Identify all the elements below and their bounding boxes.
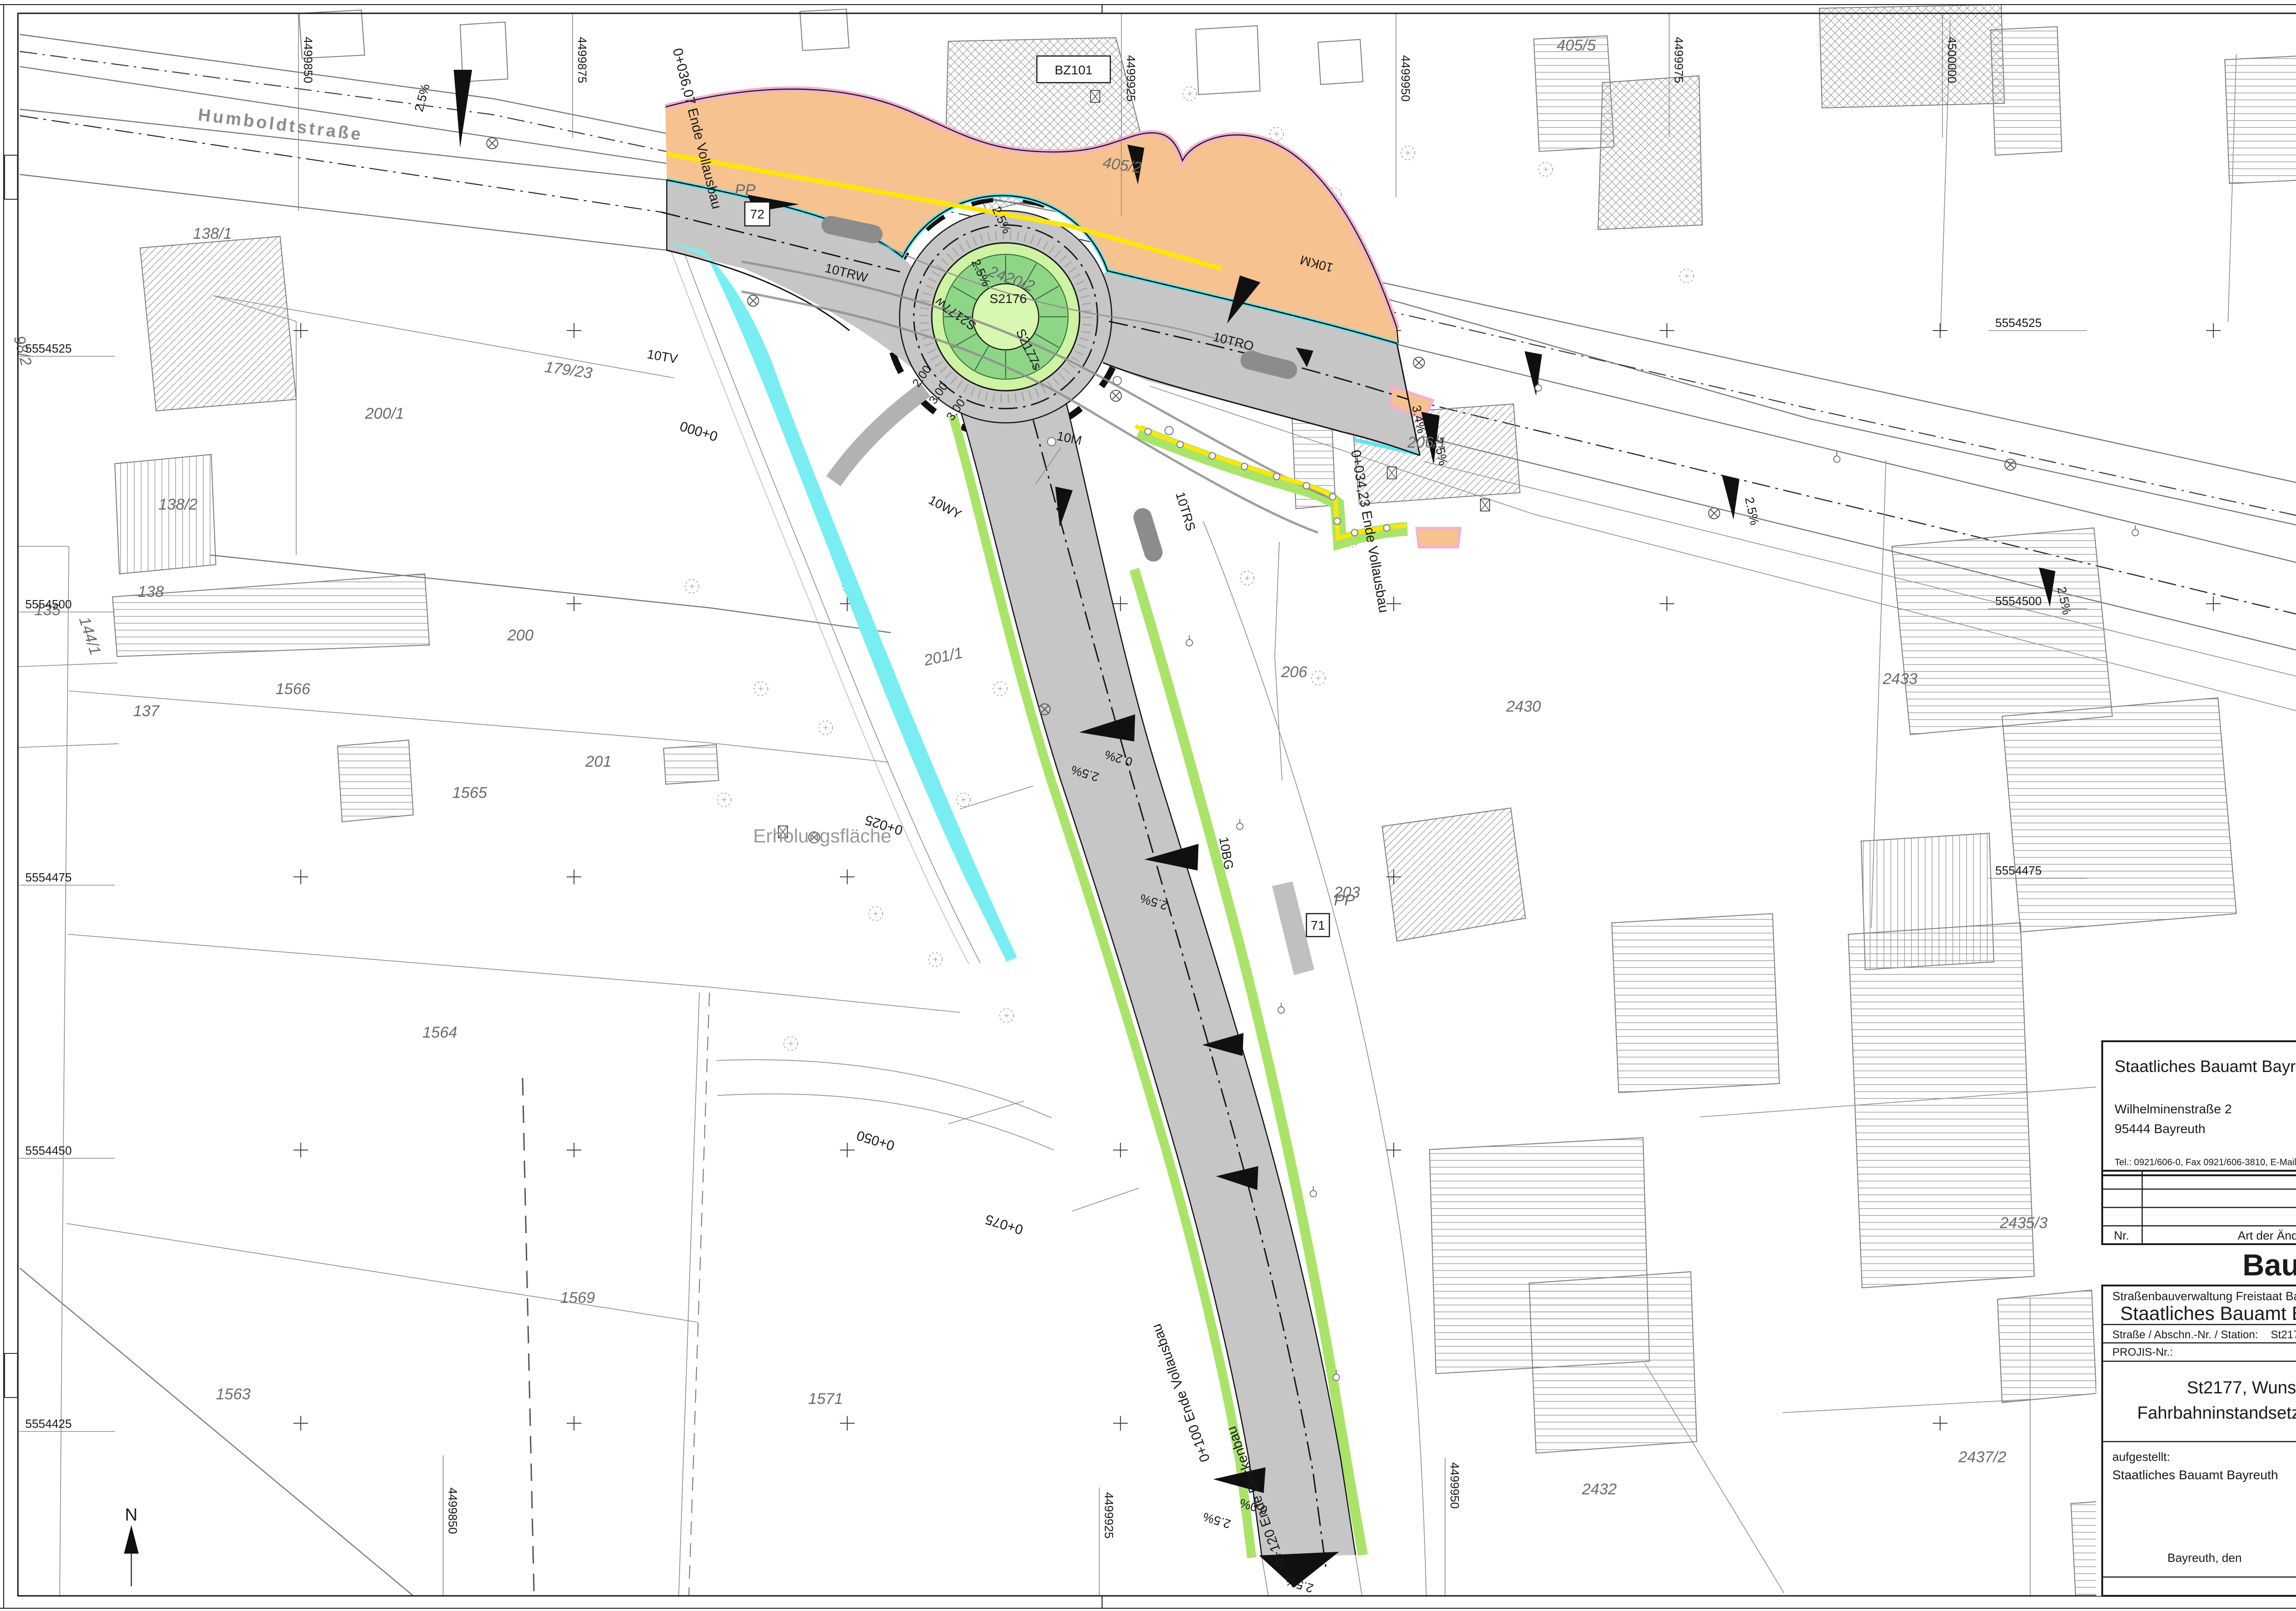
- parcel-label: 1565: [452, 784, 487, 802]
- grid-x-label: 4499850: [301, 37, 315, 83]
- bz-label: BZ101: [1055, 63, 1093, 77]
- grid-y-label: 5554450: [25, 1144, 72, 1157]
- aufgestellt-label: aufgestellt:: [2112, 1450, 2170, 1464]
- parcel-label: 138/2: [158, 496, 197, 513]
- grid-x-label: 4499925: [1124, 55, 1138, 101]
- strasse-label: Straße / Abschn.-Nr. / Station:: [2112, 1329, 2258, 1341]
- project-title-line1: St2177, Wunsiedel - (Kirchenlamitz): [2187, 1378, 2296, 1398]
- parcel-label: 2435/3: [1999, 1214, 2048, 1232]
- grid-x-label: 4499975: [1672, 37, 1686, 83]
- parcel-label: 2430: [1506, 698, 1541, 715]
- parcel-label: 138/1: [193, 225, 232, 242]
- grid-y-label: 5554525: [1995, 316, 2042, 330]
- agency-city: 95444 Bayreuth: [2115, 1122, 2206, 1136]
- aufgestellt-value: Staatliches Bauamt Bayreuth: [2112, 1468, 2278, 1482]
- agency-street: Wilhelminenstraße 2: [2115, 1102, 2232, 1116]
- agency-name: Staatliches Bauamt Bayreuth: [2115, 1057, 2296, 1076]
- grid-x-label: 4499950: [1448, 1462, 1462, 1509]
- verwaltung-label: Straßenbauverwaltung Freistaat Bayern: [2112, 1289, 2296, 1303]
- grid-x-label: 4499925: [1102, 1492, 1116, 1538]
- grid-y-label: 5554425: [25, 1417, 72, 1431]
- parcel-label: 405/5: [1557, 37, 1596, 54]
- bauentwurf-stamp: Bauentwurf: [2243, 1248, 2296, 1282]
- parcel-label: 206: [1281, 663, 1307, 681]
- rev-art: Art der Änderung: [2238, 1229, 2296, 1242]
- agency-contact: Tel.: 0921/606-0, Fax 0921/606-3810, E-M…: [2115, 1157, 2296, 1168]
- parcel-label: 2432: [1581, 1481, 1617, 1498]
- grid-x-label: 4499950: [1399, 55, 1412, 101]
- parcel-label: 1569: [560, 1289, 595, 1307]
- parcel-label: 2433: [1882, 670, 1918, 688]
- sign-71: 71: [1311, 918, 1325, 932]
- parcel-label: 137: [133, 702, 160, 720]
- road-number-label: S2176: [990, 292, 1027, 306]
- grid-x-label: 4499850: [446, 1488, 460, 1534]
- amt-name: Staatliches Bauamt Bayreuth: [2120, 1302, 2296, 1324]
- strasse-value: St2177 / 560 / 5,760 - 580 / 0,040: [2271, 1329, 2296, 1341]
- projis-label: PROJIS-Nr.:: [2112, 1346, 2173, 1358]
- pp-label: PP: [1334, 892, 1355, 909]
- rev-nr: Nr.: [2114, 1229, 2129, 1242]
- grid-y-label: 5554475: [25, 870, 72, 884]
- fold-mark: [5, 1353, 17, 1398]
- parcel-label: 1564: [422, 1024, 457, 1041]
- project-title-line2: Fahrbahninstandsetzung in der OD Marktle…: [2137, 1403, 2296, 1423]
- grid-y-label: 5554500: [25, 597, 72, 611]
- ort-datum: Bayreuth, den: [2167, 1551, 2242, 1565]
- parcel-label: 138: [138, 583, 164, 601]
- pp-label: PP: [735, 181, 756, 199]
- parcel-label: 200/1: [365, 405, 404, 422]
- grid-y-label: 5554500: [1995, 594, 2042, 608]
- north-label: N: [125, 1505, 137, 1525]
- parcel-label: 201: [585, 753, 612, 770]
- grid-x-label: 4499875: [575, 37, 589, 83]
- parcel-label: 2437/2: [1958, 1448, 2006, 1466]
- parcel-label: 1566: [276, 680, 310, 698]
- parcel-label: 1571: [808, 1390, 843, 1408]
- sign-72: 72: [750, 207, 764, 221]
- grid-y-label: 5554525: [25, 342, 72, 355]
- fold-mark: [5, 155, 17, 199]
- sidewalk-wedge-southeast: [1417, 528, 1460, 547]
- parcel-label: 200: [507, 627, 534, 644]
- parcel-label: 1563: [216, 1386, 251, 1403]
- site-plan-sheet: Humboldtstraße Erholungsfläche 138/1 138…: [0, 0, 2296, 1611]
- grid-x-label: 4500000: [1945, 37, 1959, 83]
- grid-y-label: 5554475: [1995, 864, 2042, 877]
